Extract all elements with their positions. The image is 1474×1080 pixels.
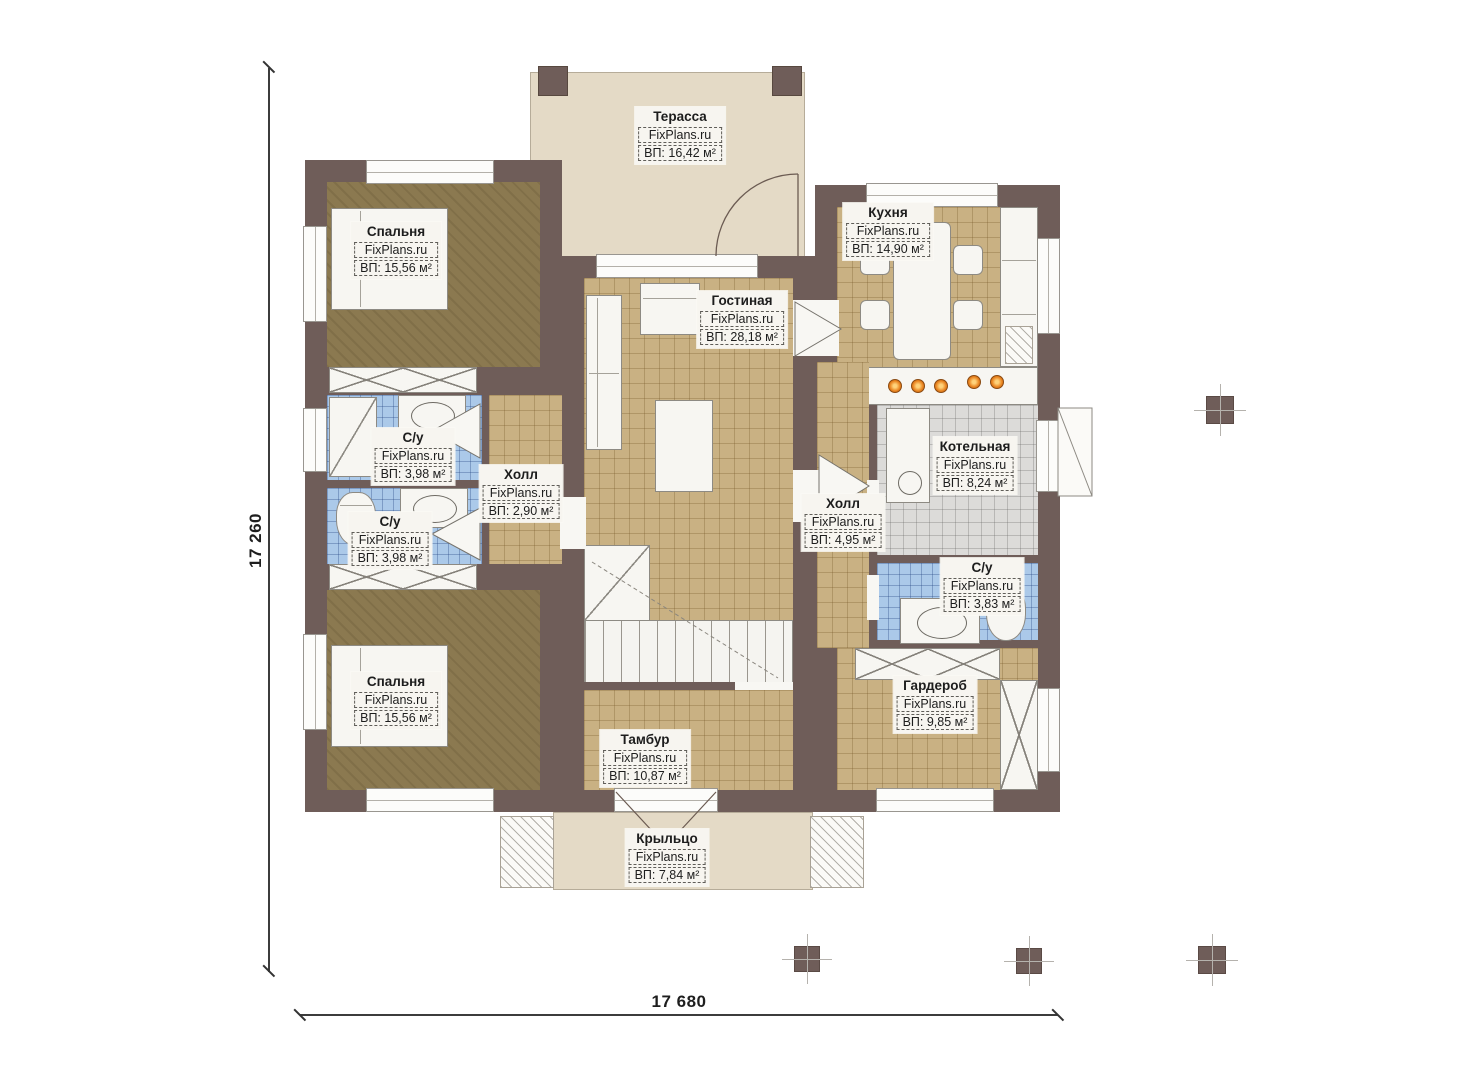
room-label-bedroom-bottom: Спальня FixPlans.ru ВП: 15,56 м² <box>351 672 441 729</box>
room-area: ВП: 7,84 м² <box>629 867 706 883</box>
room-name: Гостиная <box>700 293 784 309</box>
room-label-bathroom-top-left: С/у FixPlans.ru ВП: 3,98 м² <box>372 428 455 485</box>
room-name: Котельная <box>937 439 1014 455</box>
room-label-porch: Крыльцо FixPlans.ru ВП: 7,84 м² <box>626 829 709 886</box>
room-area: ВП: 4,95 м² <box>805 532 882 548</box>
room-label-hall-right: Холл FixPlans.ru ВП: 4,95 м² <box>802 494 885 551</box>
brand-watermark: FixPlans.ru <box>944 578 1021 594</box>
dimension-line-vertical <box>268 68 270 972</box>
brand-watermark: FixPlans.ru <box>638 127 722 143</box>
room-label-living-room: Гостиная FixPlans.ru ВП: 28,18 м² <box>697 291 787 348</box>
brand-watermark: FixPlans.ru <box>375 448 452 464</box>
room-label-boiler-room: Котельная FixPlans.ru ВП: 8,24 м² <box>934 437 1017 494</box>
room-area: ВП: 3,98 м² <box>352 550 429 566</box>
brand-watermark: FixPlans.ru <box>937 457 1014 473</box>
dimension-line-horizontal <box>300 1014 1058 1016</box>
room-label-terrace: Терасса FixPlans.ru ВП: 16,42 м² <box>635 107 725 164</box>
room-area: ВП: 16,42 м² <box>638 145 722 161</box>
door-swing-overlay <box>0 0 1474 1080</box>
brand-watermark: FixPlans.ru <box>354 692 438 708</box>
room-label-kitchen: Кухня FixPlans.ru ВП: 14,90 м² <box>843 203 933 260</box>
dimension-label-vertical: 17 260 <box>246 513 266 568</box>
room-label-vestibule: Тамбур FixPlans.ru ВП: 10,87 м² <box>600 730 690 787</box>
floor-plan: Терасса FixPlans.ru ВП: 16,42 м² Спальня… <box>0 0 1474 1080</box>
brand-watermark: FixPlans.ru <box>805 514 882 530</box>
room-area: ВП: 10,87 м² <box>603 768 687 784</box>
room-name: Спальня <box>354 674 438 690</box>
room-label-bathroom-right: С/у FixPlans.ru ВП: 3,83 м² <box>941 558 1024 615</box>
brand-watermark: FixPlans.ru <box>897 696 974 712</box>
room-area: ВП: 15,56 м² <box>354 710 438 726</box>
room-name: С/у <box>944 560 1021 576</box>
room-area: ВП: 14,90 м² <box>846 241 930 257</box>
brand-watermark: FixPlans.ru <box>700 311 784 327</box>
room-label-hall-left: Холл FixPlans.ru ВП: 2,90 м² <box>480 465 563 522</box>
room-name: Кухня <box>846 205 930 221</box>
room-area: ВП: 3,83 м² <box>944 596 1021 612</box>
room-name: Холл <box>483 467 560 483</box>
brand-watermark: FixPlans.ru <box>603 750 687 766</box>
room-name: Крыльцо <box>629 831 706 847</box>
brand-watermark: FixPlans.ru <box>629 849 706 865</box>
room-name: Гардероб <box>897 678 974 694</box>
room-area: ВП: 2,90 м² <box>483 503 560 519</box>
room-area: ВП: 15,56 м² <box>354 260 438 276</box>
room-label-bedroom-top: Спальня FixPlans.ru ВП: 15,56 м² <box>351 222 441 279</box>
brand-watermark: FixPlans.ru <box>846 223 930 239</box>
room-name: С/у <box>352 514 429 530</box>
room-area: ВП: 9,85 м² <box>897 714 974 730</box>
room-area: ВП: 28,18 м² <box>700 329 784 345</box>
room-area: ВП: 8,24 м² <box>937 475 1014 491</box>
room-name: Тамбур <box>603 732 687 748</box>
room-area: ВП: 3,98 м² <box>375 466 452 482</box>
room-name: Холл <box>805 496 882 512</box>
brand-watermark: FixPlans.ru <box>354 242 438 258</box>
room-label-wardrobe: Гардероб FixPlans.ru ВП: 9,85 м² <box>894 676 977 733</box>
dimension-label-horizontal: 17 680 <box>300 992 1058 1012</box>
room-label-bathroom-bottom-left: С/у FixPlans.ru ВП: 3,98 м² <box>349 512 432 569</box>
room-name: Терасса <box>638 109 722 125</box>
room-name: Спальня <box>354 224 438 240</box>
brand-watermark: FixPlans.ru <box>483 485 560 501</box>
brand-watermark: FixPlans.ru <box>352 532 429 548</box>
room-name: С/у <box>375 430 452 446</box>
